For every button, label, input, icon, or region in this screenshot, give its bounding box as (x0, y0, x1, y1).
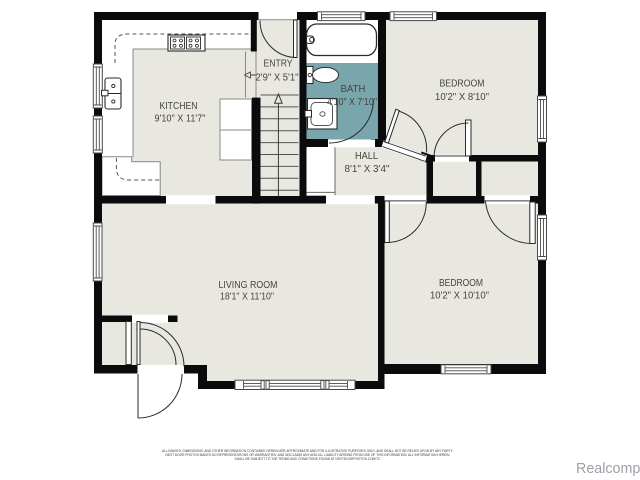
svg-text:10'2" X 10'10": 10'2" X 10'10" (430, 291, 489, 302)
svg-text:KITCHEN: KITCHEN (160, 100, 198, 112)
svg-text:10'2" X 8'10": 10'2" X 8'10" (435, 92, 489, 103)
svg-text:ENTRY: ENTRY (264, 58, 293, 70)
svg-text:8'1" X 3'4": 8'1" X 3'4" (345, 164, 390, 175)
svg-text:BATH: BATH (341, 83, 366, 95)
svg-text:4'10" X 7'10": 4'10" X 7'10" (327, 97, 377, 108)
svg-text:BEDROOM: BEDROOM (440, 78, 485, 90)
svg-text:9'10" X 11'7": 9'10" X 11'7" (155, 114, 206, 125)
svg-text:2'9" X 5'1": 2'9" X 5'1" (256, 73, 299, 84)
svg-text:BEDROOM: BEDROOM (439, 277, 483, 289)
svg-text:18'1" X 11'10": 18'1" X 11'10" (220, 292, 274, 303)
svg-text:HALL: HALL (355, 150, 378, 162)
svg-text:LIVING ROOM: LIVING ROOM (219, 279, 278, 291)
